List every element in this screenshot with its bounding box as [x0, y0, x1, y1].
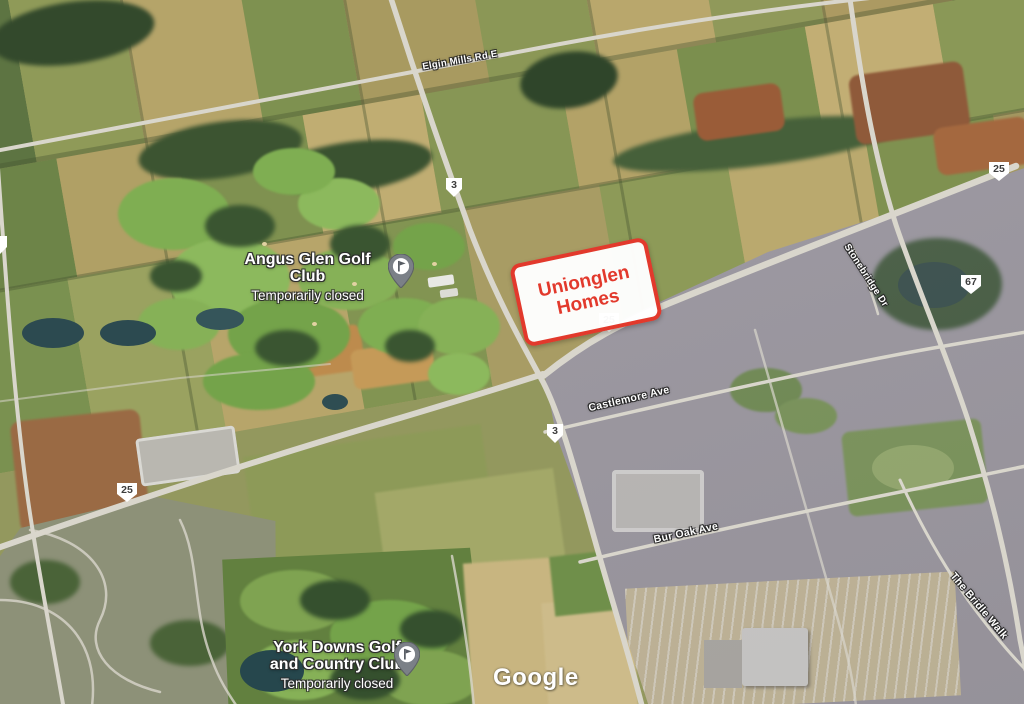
golf-pin-icon[interactable] [394, 642, 420, 676]
golf-pin-icon[interactable] [388, 254, 414, 288]
poi-angus-glen[interactable]: Angus Glen Golf Club Temporarily closed [225, 252, 390, 303]
roads-layer [0, 0, 1024, 704]
poi-status: Temporarily closed [252, 676, 422, 691]
satellite-map[interactable]: 3 25 67 25 3 25 Elgin Mills Rd E Stonebr… [0, 0, 1024, 704]
google-attribution[interactable]: Google [493, 664, 579, 692]
poi-name: Angus Glen Golf Club [225, 252, 390, 286]
poi-status: Temporarily closed [225, 288, 390, 303]
